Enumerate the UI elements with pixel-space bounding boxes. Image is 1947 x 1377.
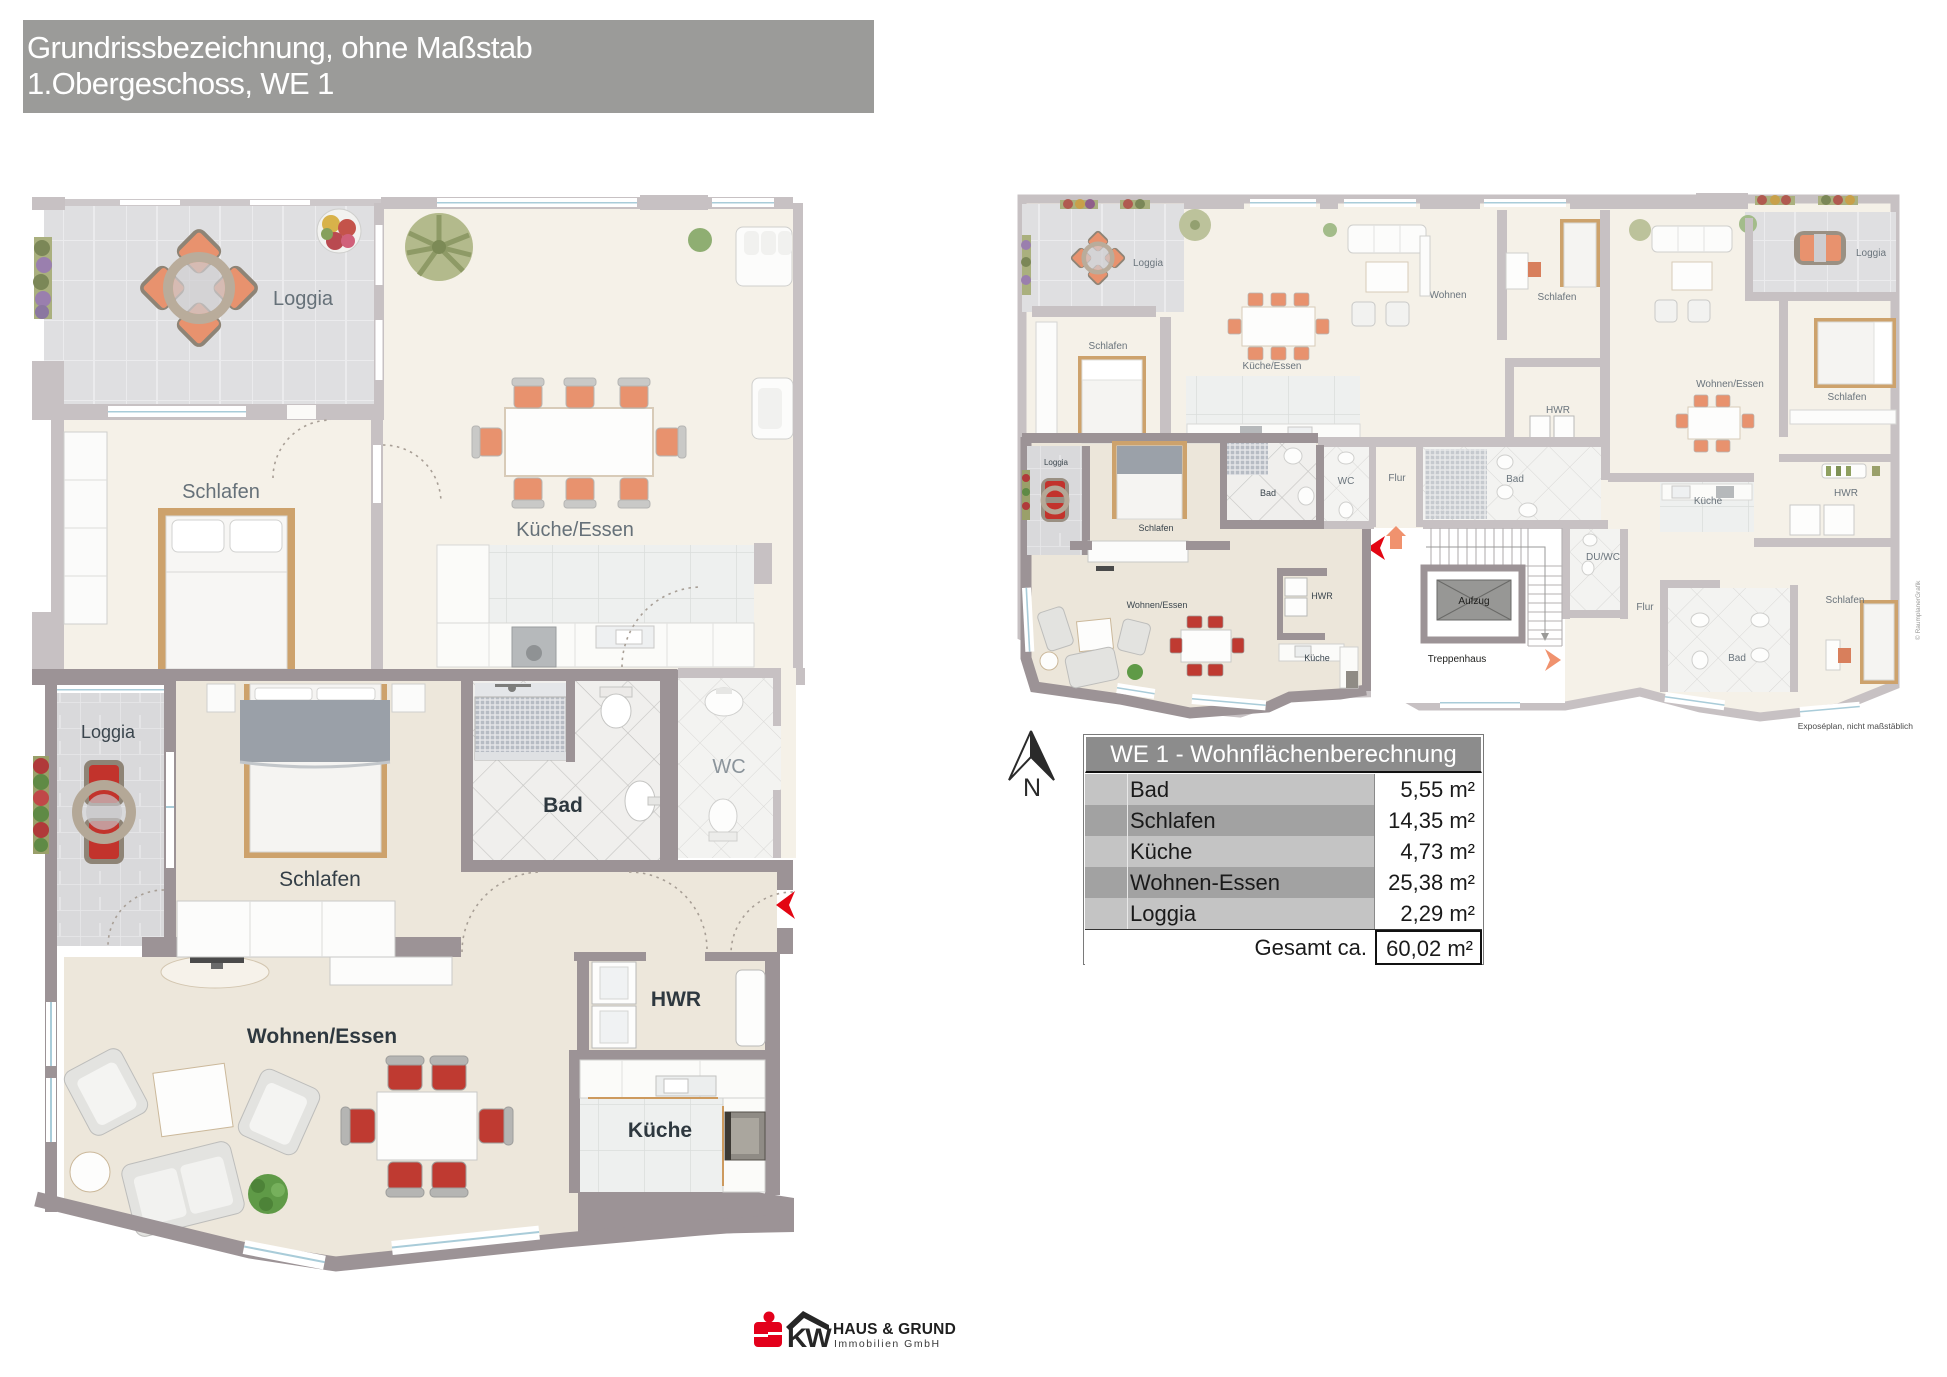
svg-text:DU/WC: DU/WC	[1586, 552, 1620, 563]
svg-text:Flur: Flur	[1636, 602, 1654, 613]
svg-text:Küche/Essen: Küche/Essen	[516, 519, 634, 541]
svg-text:Küche/Essen: Küche/Essen	[1243, 361, 1302, 372]
svg-text:Küche: Küche	[1304, 653, 1330, 663]
svg-text:Loggia: Loggia	[81, 722, 136, 742]
svg-text:HWR: HWR	[1546, 405, 1570, 416]
svg-text:KW: KW	[787, 1323, 832, 1353]
svg-text:Loggia: Loggia	[1044, 458, 1069, 467]
svg-text:Küche: Küche	[1694, 496, 1723, 507]
svg-text:Wohnen/Essen: Wohnen/Essen	[1696, 379, 1764, 390]
svg-text:Exposéplan, nicht maßstäblich: Exposéplan, nicht maßstäblich	[1798, 721, 1914, 731]
svg-text:Treppenhaus: Treppenhaus	[1428, 654, 1487, 665]
svg-text:Bad: Bad	[1506, 474, 1524, 485]
svg-text:Schlafen: Schlafen	[1826, 595, 1865, 606]
svg-text:Aufzug: Aufzug	[1458, 596, 1489, 607]
svg-text:© RaumplanerGrafik: © RaumplanerGrafik	[1914, 580, 1922, 640]
svg-text:Wohnen: Wohnen	[1429, 290, 1466, 301]
svg-text:WC: WC	[712, 756, 745, 778]
svg-text:Schlafen: Schlafen	[1089, 341, 1128, 352]
svg-text:Bad: Bad	[1260, 488, 1276, 498]
svg-text:HWR: HWR	[651, 988, 701, 1011]
svg-text:Schlafen: Schlafen	[182, 481, 260, 503]
svg-text:Bad: Bad	[543, 794, 583, 817]
svg-text:Loggia: Loggia	[273, 288, 334, 310]
svg-text:Schlafen: Schlafen	[1828, 392, 1867, 403]
svg-text:Bad: Bad	[1728, 653, 1746, 664]
svg-text:Flur: Flur	[1388, 473, 1406, 484]
svg-text:Schlafen: Schlafen	[1138, 523, 1173, 533]
svg-text:Schlafen: Schlafen	[279, 868, 361, 891]
svg-text:Loggia: Loggia	[1133, 258, 1163, 269]
svg-text:Loggia: Loggia	[1856, 248, 1886, 259]
svg-text:HWR: HWR	[1834, 488, 1858, 499]
svg-text:HWR: HWR	[1311, 591, 1333, 601]
svg-text:Wohnen/Essen: Wohnen/Essen	[1127, 600, 1188, 610]
svg-text:Wohnen/Essen: Wohnen/Essen	[247, 1025, 397, 1048]
svg-text:WC: WC	[1338, 476, 1355, 487]
svg-text:Küche: Küche	[628, 1119, 692, 1142]
svg-text:Immobilien GmbH: Immobilien GmbH	[834, 1338, 941, 1350]
svg-text:HAUS & GRUND: HAUS & GRUND	[833, 1321, 956, 1338]
svg-text:N: N	[1023, 774, 1041, 802]
svg-text:Schlafen: Schlafen	[1538, 292, 1577, 303]
